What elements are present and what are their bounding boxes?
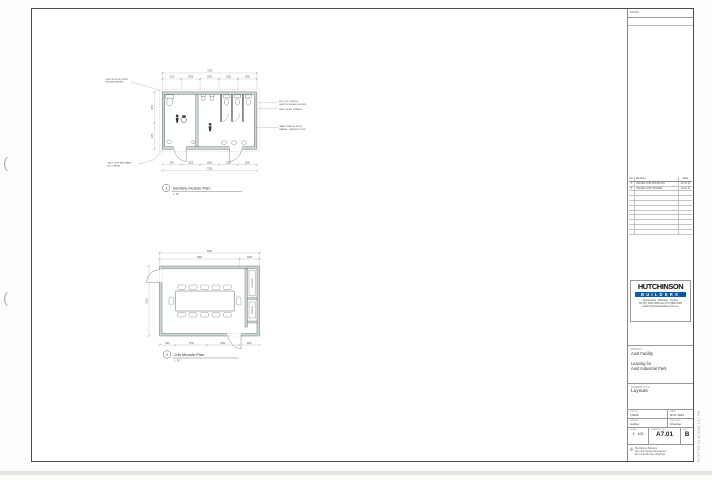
- scale-dwg-rev-row: SCALE 1 : 100 DRAWING No. A7.01 REV B: [628, 427, 693, 444]
- revision-table: No. Revision Date A ISSUED FOR APPROVAL …: [629, 177, 692, 235]
- drawn-checked-row: DRAWN Author CHECKED Checker: [628, 418, 693, 427]
- dim-text: 1200: [247, 257, 253, 259]
- view-title: Crib Module Plan: [174, 352, 205, 357]
- internal-wall: [245, 269, 248, 328]
- door-swings: [174, 148, 242, 161]
- copyright-note: © Hutchinson Builders Use only figured d…: [628, 444, 693, 459]
- view-scale: 1 : 50: [174, 359, 181, 362]
- note-roof: SHOWN DASHED: [105, 81, 124, 84]
- revision-row-empty: [629, 230, 692, 235]
- dim-text: 1500: [226, 162, 232, 164]
- dim-text: 1500: [245, 77, 251, 79]
- dim-text: 1500: [226, 77, 232, 79]
- dim-text: 1200: [169, 77, 175, 79]
- checked-value: Checker: [670, 422, 691, 426]
- dim-text: 1500: [188, 77, 194, 79]
- dimension-lines: [162, 72, 257, 90]
- drawing-number: A7.01: [651, 431, 678, 439]
- dim-text: 1750: [189, 343, 195, 345]
- dim-text: 1500: [188, 162, 194, 164]
- sanitary-module-plan: 7200 1200 1500 1500 1500 1500 1650 1050 …: [102, 67, 352, 199]
- dim-text: 3000: [147, 298, 149, 304]
- revision-value: B: [683, 431, 691, 439]
- drawing-title: Layouts: [631, 389, 690, 395]
- dim-text: 900: [170, 162, 175, 164]
- note-vanity: BASINS + MIRROR OVER: [279, 128, 306, 131]
- dim-text: 1500: [245, 162, 251, 164]
- date-value: NOV 2011: [670, 413, 691, 417]
- binder-mark-top: (: [3, 155, 8, 172]
- copyright-icon: ©: [630, 447, 633, 458]
- note-ramp: GALV STEP AND RAMP: [107, 162, 132, 165]
- view-tag-number: 1: [165, 186, 167, 190]
- drawn-value: Author: [630, 422, 665, 426]
- internal-wall: [196, 94, 198, 146]
- note-partitions: PARTITIONS AND DOORS: [279, 103, 306, 106]
- note-urinals: WALL HUNG URINALS: [279, 108, 302, 111]
- view-tag-number: 2: [166, 353, 168, 357]
- drawing-sheet: 7200 1200 1500 1500 1500 1500 1650 1050 …: [31, 8, 694, 462]
- project-name: Aust Industrial Park: [631, 366, 690, 372]
- dimension-lines: [160, 252, 260, 268]
- logo-contact: www.hutchinsonbuilders.com.au: [631, 305, 690, 308]
- job-date-row: JOB No. 13309 DATE NOV 2011: [628, 409, 693, 418]
- scale-value: 1 : 100: [630, 431, 646, 437]
- rev-col-desc: Revision: [635, 177, 679, 181]
- job-number: 13309: [630, 413, 665, 417]
- note-ramp: BY OTHERS: [107, 165, 120, 167]
- notes-spacer: [628, 18, 693, 26]
- dim-text: 1200: [246, 343, 252, 345]
- dim-text: 1800: [207, 162, 213, 164]
- view-scale: 1 : 50: [173, 193, 180, 196]
- company-logo: HUTCHINSON BUILDERS Toowoomba . Brisbane…: [630, 280, 691, 322]
- dim-text: 1650: [152, 104, 154, 110]
- dim-text: 7200: [207, 71, 213, 73]
- room-label-fridge: FRIDGE: [252, 305, 254, 313]
- note-partitions: FULL HT CUBICLE: [279, 101, 298, 103]
- dim-text: 900: [166, 343, 171, 345]
- dim-text: 7200: [207, 168, 213, 170]
- dim-text: 1950: [220, 343, 226, 345]
- crib-module-plan: LOCKERS FRIDGE 6000 4800 1200 3: [112, 247, 302, 362]
- binder-mark-bottom: (: [3, 290, 8, 307]
- plot-stamp: PLOTTED 04.11.2011 4:17 PM: [697, 392, 706, 462]
- notes-label: NOTES: [628, 9, 693, 18]
- crib-table: [176, 291, 235, 311]
- note-roof: LINE OF ROOF OVER: [105, 79, 128, 81]
- project-section: PROJECT Aust Facility Leasing for Aust I…: [628, 345, 693, 372]
- logo-word-builders: BUILDERS: [635, 292, 686, 298]
- screenshot-root: ( (: [0, 0, 712, 480]
- view-title: Sanitary Module Plan: [173, 186, 211, 191]
- logo-word-hutchinson: HUTCHINSON: [631, 283, 690, 291]
- dim-text: 1500: [207, 77, 213, 79]
- scan-shadow: [0, 471, 712, 475]
- rev-col-date: Date: [679, 177, 692, 181]
- dim-text: 4800: [197, 257, 203, 259]
- room-label-lockers: LOCKERS: [252, 277, 254, 288]
- basins: [222, 141, 247, 145]
- dim-text: 1050: [152, 133, 154, 139]
- dim-text: 6000: [207, 251, 213, 253]
- title-block: NOTES No. Revision Date A ISSUED FOR APP…: [627, 9, 693, 461]
- note-vanity: VANITY BENCH WITH: [279, 125, 302, 128]
- drawing-title-section: DRAWING TITLE Layouts: [628, 383, 693, 395]
